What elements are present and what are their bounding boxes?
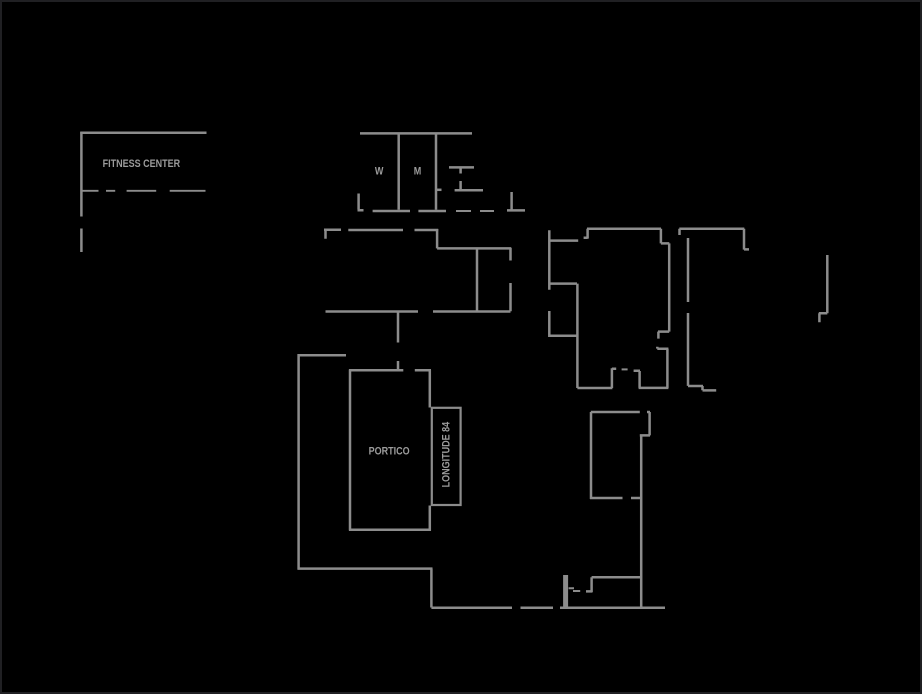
svg-text:FITNESS CENTER: FITNESS CENTER [103, 158, 181, 170]
svg-text:LONGITUDE 84: LONGITUDE 84 [441, 421, 453, 487]
svg-text:M: M [414, 166, 422, 178]
svg-text:PORTICO: PORTICO [369, 446, 410, 458]
svg-text:W: W [375, 166, 384, 178]
